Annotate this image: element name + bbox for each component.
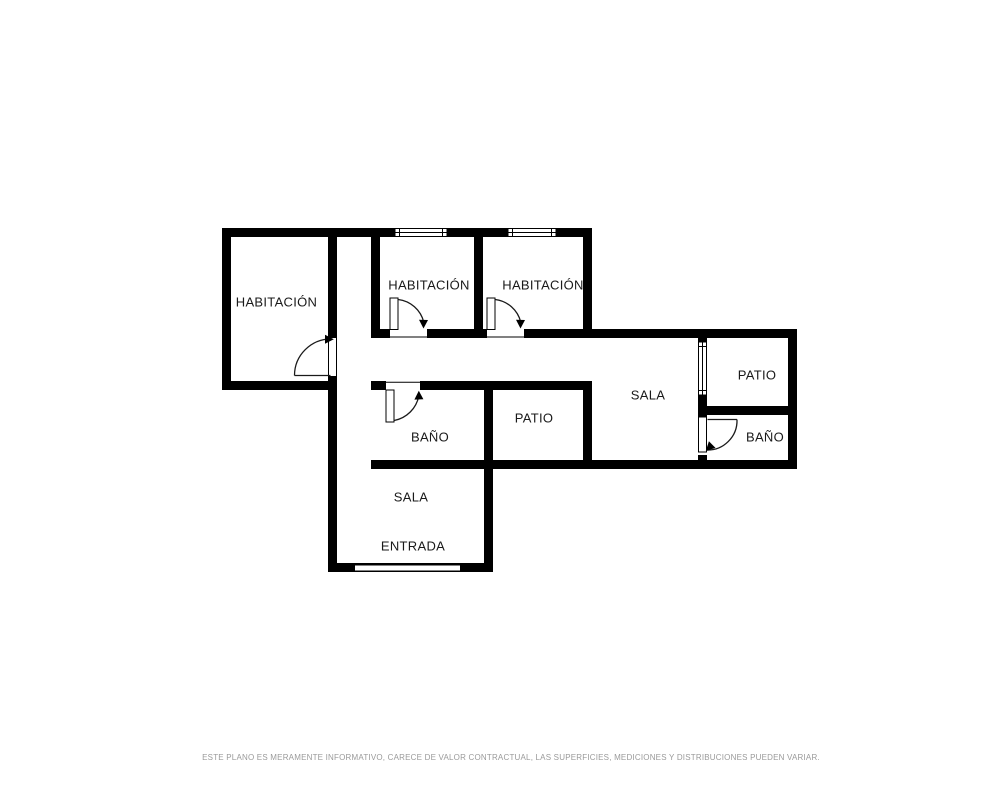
window-icon-habitacion-right (508, 229, 556, 237)
wall (474, 228, 483, 338)
wall (583, 228, 592, 338)
room-label-sala-right: SALA (631, 388, 665, 403)
wall (788, 329, 797, 469)
door-leaf (329, 338, 337, 377)
room-label-bano-right: BAÑO (746, 430, 784, 445)
floor-plan-drawing: HABITACIÓN HABITACIÓN HABITACIÓN BAÑO PA… (0, 0, 1000, 800)
wall (222, 381, 337, 390)
entrance-opening-icon (355, 566, 460, 571)
door-leaf (487, 298, 495, 330)
wall (583, 381, 592, 469)
wall (484, 460, 493, 572)
room-label-habitacion-middle: HABITACIÓN (388, 278, 470, 293)
room-label-entrada: ENTRADA (381, 539, 445, 554)
door-leaf (699, 417, 707, 452)
room-label-bano-middle: BAÑO (411, 430, 449, 445)
wall (484, 381, 493, 469)
door-leaf (390, 298, 398, 330)
room-label-patio-middle: PATIO (515, 411, 554, 426)
floor-plan: HABITACIÓN HABITACIÓN HABITACIÓN BAÑO PA… (0, 0, 1000, 800)
wall (328, 228, 337, 572)
wall (222, 228, 231, 390)
window-icon-habitacion-middle (395, 229, 447, 237)
wall (698, 406, 797, 415)
window-icon-sala-patio (699, 342, 707, 395)
room-label-sala-bottom: SALA (394, 490, 428, 505)
room-label-patio-right: PATIO (738, 368, 777, 383)
hallway-area (337, 338, 588, 381)
entrance-gap (355, 566, 460, 571)
room-label-habitacion-left: HABITACIÓN (236, 295, 318, 310)
door-leaf (386, 390, 394, 422)
wall (371, 228, 380, 338)
disclaimer-text: ESTE PLANO ES MERAMENTE INFORMATIVO, CAR… (202, 753, 820, 762)
room-bano-middle (380, 390, 484, 460)
room-label-habitacion-right: HABITACIÓN (502, 278, 584, 293)
